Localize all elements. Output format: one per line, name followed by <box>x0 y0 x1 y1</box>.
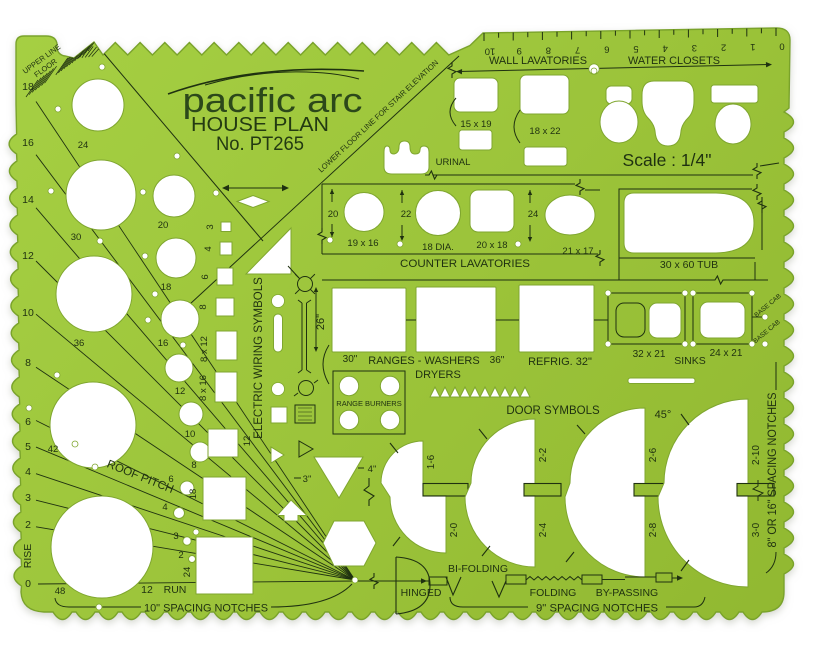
svg-text:3: 3 <box>25 492 31 504</box>
svg-text:8: 8 <box>546 44 551 55</box>
svg-text:12: 12 <box>175 386 186 397</box>
svg-text:18: 18 <box>22 81 34 93</box>
svg-text:6: 6 <box>200 274 211 279</box>
svg-text:1: 1 <box>750 41 755 52</box>
svg-text:9" SPACING NOTCHES: 9" SPACING NOTCHES <box>536 603 658 615</box>
svg-text:20 x 18: 20 x 18 <box>476 240 507 251</box>
svg-text:19 x 16: 19 x 16 <box>347 238 378 249</box>
svg-text:2-0: 2-0 <box>449 522 460 537</box>
svg-text:12: 12 <box>242 436 253 447</box>
svg-text:16: 16 <box>22 137 34 149</box>
svg-text:0: 0 <box>25 578 31 590</box>
svg-text:6: 6 <box>604 43 609 54</box>
svg-text:Scale : 1/4": Scale : 1/4" <box>623 150 712 170</box>
svg-text:26": 26" <box>315 314 327 330</box>
svg-text:WALL LAVATORIES: WALL LAVATORIES <box>489 55 587 67</box>
svg-text:8: 8 <box>25 357 31 369</box>
svg-text:No. PT265: No. PT265 <box>216 133 304 155</box>
svg-text:8: 8 <box>191 460 196 471</box>
svg-text:RANGE BURNERS: RANGE BURNERS <box>336 399 401 408</box>
svg-text:36": 36" <box>490 355 505 366</box>
svg-text:10" SPACING NOTCHES: 10" SPACING NOTCHES <box>144 603 268 615</box>
svg-text:3: 3 <box>173 531 178 542</box>
svg-text:5: 5 <box>633 43 638 54</box>
svg-text:ELECTRIC WIRING SYMBOLS: ELECTRIC WIRING SYMBOLS <box>253 277 265 439</box>
svg-text:14: 14 <box>22 194 34 206</box>
svg-text:10: 10 <box>185 429 196 440</box>
svg-text:18: 18 <box>161 282 172 293</box>
svg-text:16: 16 <box>158 338 169 349</box>
svg-text:URINAL: URINAL <box>436 157 471 168</box>
svg-text:20: 20 <box>158 220 169 231</box>
svg-text:SINKS: SINKS <box>674 355 706 367</box>
svg-text:3: 3 <box>205 224 216 229</box>
svg-text:WATER CLOSETS: WATER CLOSETS <box>628 55 720 67</box>
svg-text:18 DIA.: 18 DIA. <box>422 242 454 253</box>
svg-text:2: 2 <box>178 550 183 561</box>
svg-text:8 x 12: 8 x 12 <box>199 336 210 362</box>
svg-text:24: 24 <box>528 209 539 220</box>
svg-text:30: 30 <box>71 232 82 243</box>
svg-text:0: 0 <box>779 40 784 51</box>
svg-text:36: 36 <box>74 338 85 349</box>
svg-text:2-2: 2-2 <box>538 447 549 462</box>
svg-text:4: 4 <box>663 42 668 53</box>
svg-text:RISE: RISE <box>22 544 34 569</box>
svg-text:2: 2 <box>721 41 726 52</box>
svg-text:21 x 17: 21 x 17 <box>562 246 593 257</box>
svg-text:3: 3 <box>692 42 697 53</box>
svg-text:8" OR 16" SPACING NOTCHES: 8" OR 16" SPACING NOTCHES <box>767 392 779 547</box>
svg-text:4: 4 <box>203 246 214 251</box>
svg-text:BY-PASSING: BY-PASSING <box>596 587 658 599</box>
svg-text:COUNTER LAVATORIES: COUNTER LAVATORIES <box>400 258 530 270</box>
svg-text:4: 4 <box>162 502 167 513</box>
svg-text:22: 22 <box>401 209 412 220</box>
svg-text:2: 2 <box>25 519 31 531</box>
svg-text:RANGES - WASHERS: RANGES - WASHERS <box>368 355 479 367</box>
svg-text:12: 12 <box>141 584 153 596</box>
svg-text:20: 20 <box>328 209 339 220</box>
svg-text:18 x 22: 18 x 22 <box>529 126 560 137</box>
svg-text:30 x 60 TUB: 30 x 60 TUB <box>660 259 718 271</box>
svg-text:DOOR SYMBOLS: DOOR SYMBOLS <box>506 405 600 417</box>
svg-text:18: 18 <box>188 489 199 500</box>
svg-text:48: 48 <box>55 586 66 597</box>
svg-text:8: 8 <box>198 304 209 309</box>
svg-text:RUN: RUN <box>164 584 187 596</box>
svg-text:7: 7 <box>575 44 580 55</box>
svg-text:8 x 16: 8 x 16 <box>198 375 209 401</box>
svg-text:15 x 19: 15 x 19 <box>460 119 491 130</box>
svg-text:6: 6 <box>25 416 31 428</box>
svg-text:24 x 21: 24 x 21 <box>710 348 743 359</box>
svg-text:2-8: 2-8 <box>648 522 659 537</box>
svg-text:DRYERS: DRYERS <box>415 369 461 381</box>
svg-text:HINGED: HINGED <box>401 587 442 599</box>
svg-text:2-10: 2-10 <box>751 445 762 465</box>
svg-text:BI-FOLDING: BI-FOLDING <box>448 563 508 575</box>
svg-text:32 x 21: 32 x 21 <box>633 349 666 360</box>
svg-text:12: 12 <box>22 250 34 262</box>
svg-text:4: 4 <box>25 466 31 478</box>
svg-text:42: 42 <box>48 444 59 455</box>
svg-text:10: 10 <box>22 307 34 319</box>
svg-text:3": 3" <box>303 474 312 485</box>
svg-text:30": 30" <box>343 354 358 365</box>
svg-text:24: 24 <box>78 140 89 151</box>
svg-text:1-6: 1-6 <box>426 454 437 469</box>
svg-text:2-6: 2-6 <box>648 447 659 462</box>
svg-text:3-0: 3-0 <box>751 522 762 537</box>
svg-text:2-4: 2-4 <box>538 522 549 537</box>
svg-text:FOLDING: FOLDING <box>530 587 577 599</box>
svg-text:45°: 45° <box>655 409 672 421</box>
svg-text:4": 4" <box>368 464 377 475</box>
svg-text:5: 5 <box>25 441 31 453</box>
svg-text:24: 24 <box>182 567 193 578</box>
svg-text:REFRIG. 32": REFRIG. 32" <box>528 356 592 368</box>
